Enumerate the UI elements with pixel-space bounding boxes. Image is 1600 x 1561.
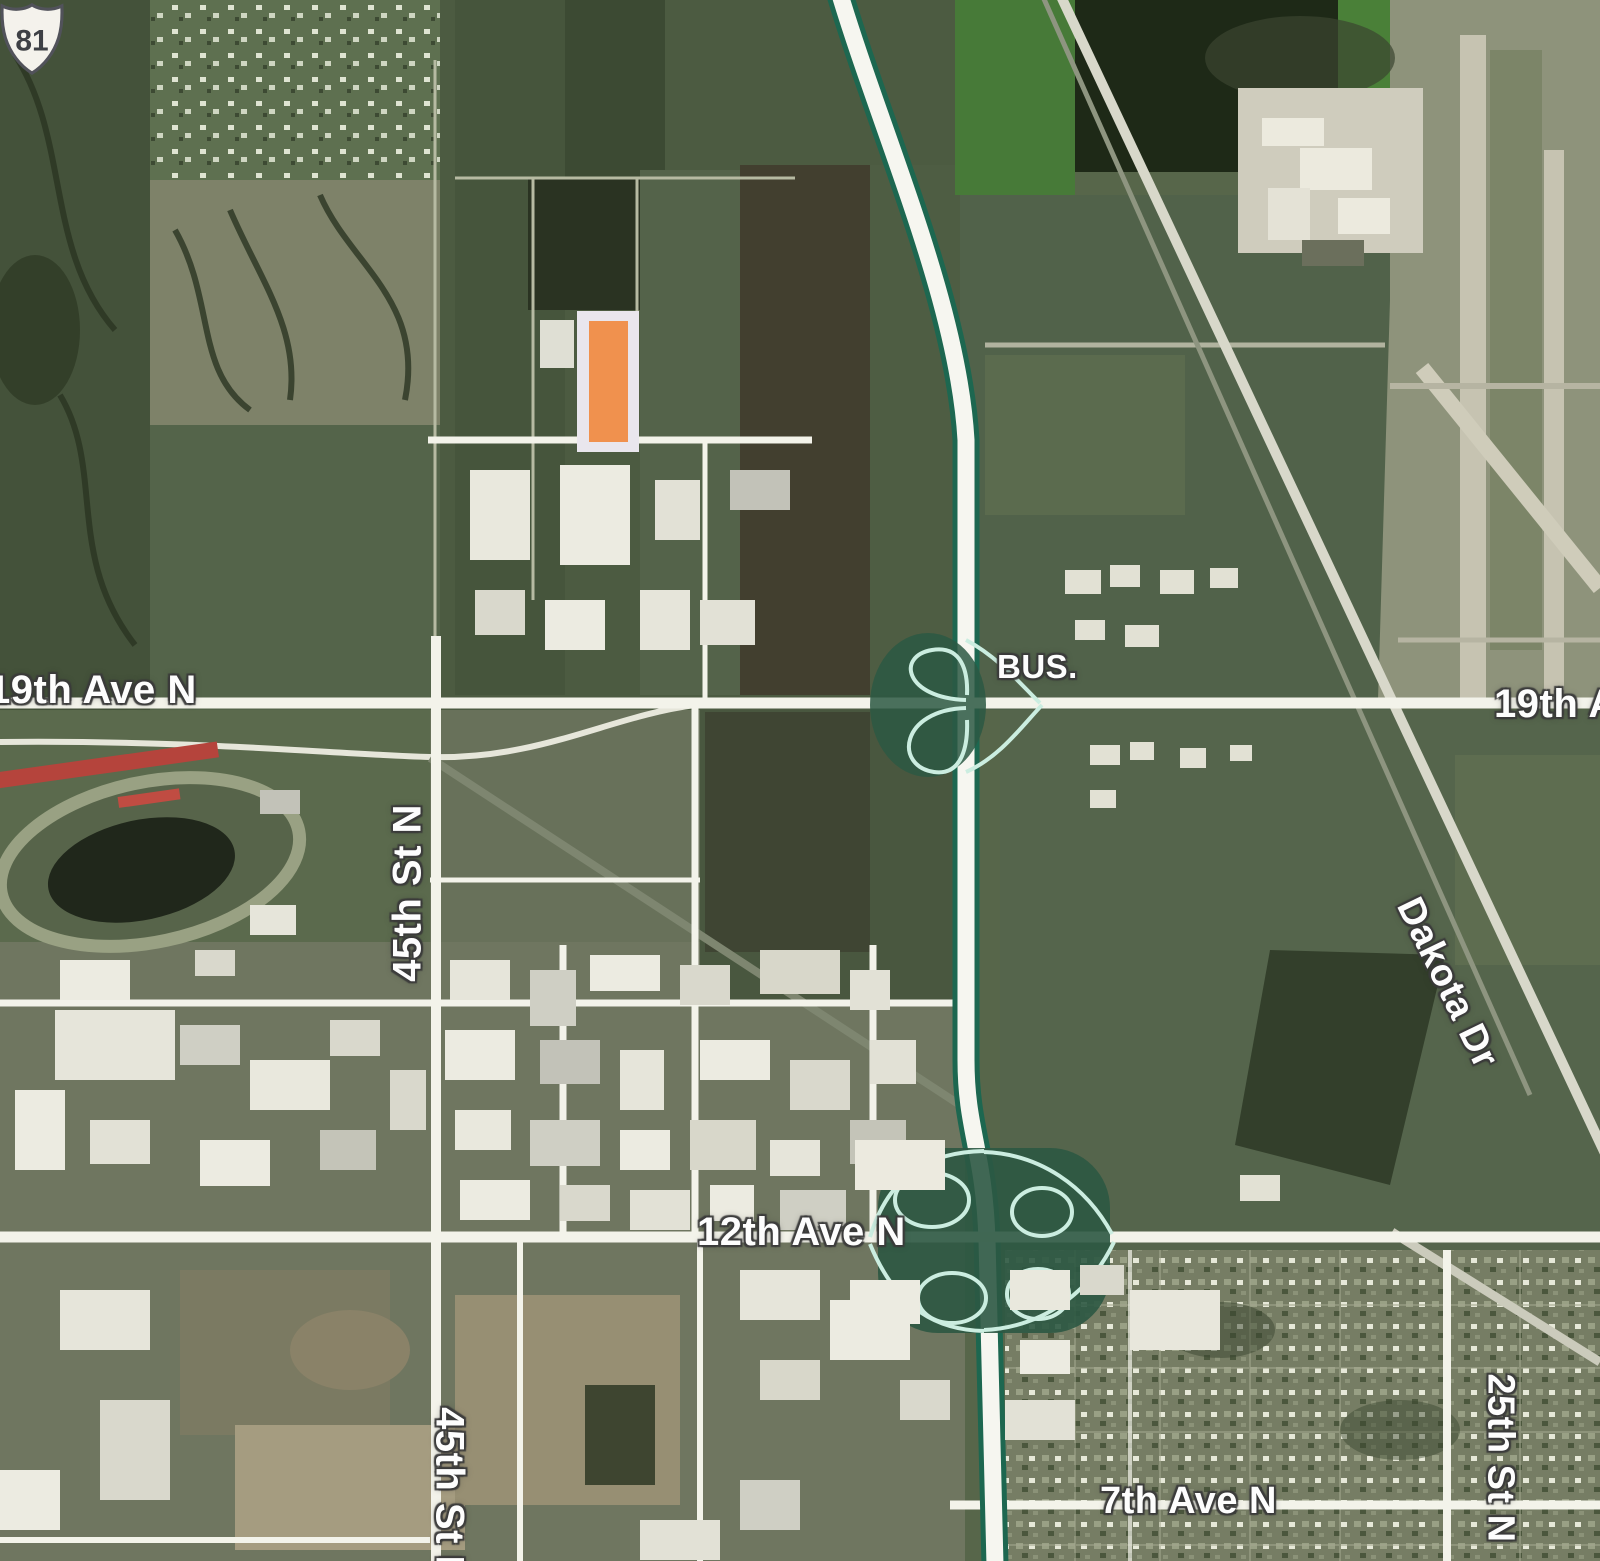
route-shield-number: 81	[15, 25, 48, 58]
us-route-shield-icon: 81	[0, 0, 64, 78]
map-canvas[interactable]: 19th Ave N 19th Ave N 45th St N 45th St …	[0, 0, 1600, 1561]
highlighted-parcel-fill	[589, 321, 628, 442]
highlighted-parcel-marker[interactable]	[577, 311, 639, 452]
satellite-imagery	[0, 0, 1600, 1561]
